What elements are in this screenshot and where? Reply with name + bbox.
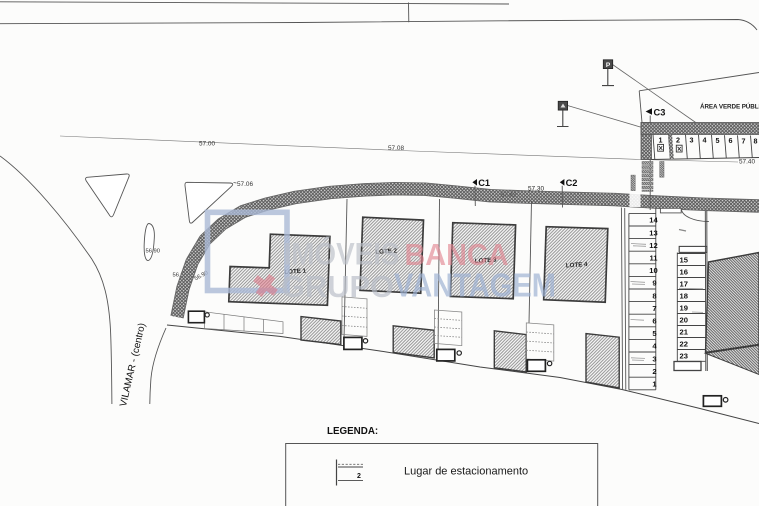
svg-text:8: 8 xyxy=(754,137,758,146)
svg-text:GRUPO: GRUPO xyxy=(281,269,394,304)
svg-text:18: 18 xyxy=(680,291,688,300)
svg-text:23: 23 xyxy=(680,351,688,360)
svg-text:16: 16 xyxy=(680,267,688,276)
svg-text:4: 4 xyxy=(703,136,707,145)
svg-text:6: 6 xyxy=(729,136,733,145)
svg-text:VANTAGEM: VANTAGEM xyxy=(394,266,556,303)
svg-text:57.00: 57.00 xyxy=(199,141,215,148)
svg-text:12: 12 xyxy=(649,241,657,250)
svg-text:P: P xyxy=(606,62,611,69)
svg-text:13: 13 xyxy=(649,228,657,237)
svg-text:20: 20 xyxy=(680,315,688,324)
svg-text:Lugar de estacionamento: Lugar de estacionamento xyxy=(404,466,528,478)
svg-text:IMÓVEIS: IMÓVEIS xyxy=(284,236,400,272)
svg-text:17: 17 xyxy=(680,279,688,288)
svg-text:57.08: 57.08 xyxy=(388,145,404,152)
svg-text:57.40: 57.40 xyxy=(739,159,755,166)
svg-text:3: 3 xyxy=(690,136,694,145)
svg-text:ÁREA VERDE PÚBLICA: ÁREA VERDE PÚBLICA xyxy=(700,102,759,111)
svg-text:11: 11 xyxy=(649,254,658,263)
svg-text:14: 14 xyxy=(649,216,658,225)
svg-text:8: 8 xyxy=(652,291,656,300)
svg-text:7: 7 xyxy=(742,136,746,145)
svg-text:7: 7 xyxy=(652,304,656,313)
svg-text:C2: C2 xyxy=(566,178,578,188)
svg-text:1: 1 xyxy=(659,136,663,145)
svg-text:57.30: 57.30 xyxy=(528,185,544,192)
svg-text:3: 3 xyxy=(652,354,656,363)
svg-text:19: 19 xyxy=(680,303,688,312)
svg-text:6: 6 xyxy=(652,317,656,326)
svg-text:9: 9 xyxy=(652,279,656,288)
svg-text:57.42: 57.42 xyxy=(501,191,517,199)
svg-text:LEGENDA:: LEGENDA: xyxy=(327,426,378,437)
svg-text:2: 2 xyxy=(652,367,656,376)
svg-text:21: 21 xyxy=(680,327,689,336)
svg-text:57.06: 57.06 xyxy=(237,181,253,188)
svg-text:2: 2 xyxy=(357,473,361,480)
svg-text:10: 10 xyxy=(649,266,657,275)
svg-text:C1: C1 xyxy=(478,178,490,188)
svg-text:15: 15 xyxy=(680,255,689,264)
svg-text:C3: C3 xyxy=(654,108,666,118)
svg-text:22: 22 xyxy=(680,339,688,348)
svg-text:56.90: 56.90 xyxy=(146,249,161,255)
svg-text:5: 5 xyxy=(716,136,720,145)
svg-text:2: 2 xyxy=(676,136,680,145)
